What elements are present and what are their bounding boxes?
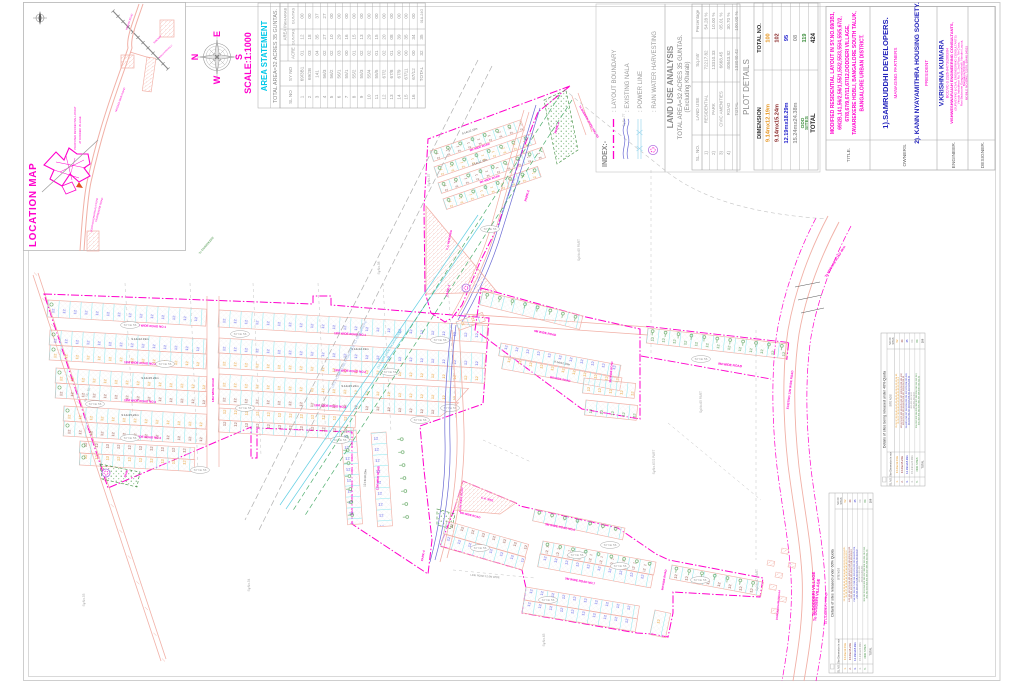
svg-text:00: 00 xyxy=(299,13,304,19)
svg-text:TOTAL: TOTAL xyxy=(920,460,924,469)
svg-text:00: 00 xyxy=(374,13,379,19)
svg-text:TITLE.: TITLE. xyxy=(846,148,852,162)
svg-text:9.14mx12.19m: 9.14mx12.19m xyxy=(895,456,899,473)
svg-text:67/8,67/9,67/11,67/12,DODDERI: 67/8,67/9,67/11,67/12,DODDERI VILLAGE, xyxy=(845,24,851,122)
svg-text:56/2: 56/2 xyxy=(329,69,334,78)
svg-text:Details of sites released unde: Details of sites released under 60% Quot… xyxy=(831,549,835,616)
svg-text:1.: 1. xyxy=(895,480,899,482)
svg-text:55/1: 55/1 xyxy=(344,69,349,78)
svg-text:00: 00 xyxy=(381,13,386,19)
svg-text:Sy.No.54: Sy.No.54 xyxy=(247,578,251,591)
svg-text:RESIDENTIAL: RESIDENTIAL xyxy=(703,94,708,123)
svg-text:13310.33: 13310.33 xyxy=(711,50,716,70)
svg-text:00: 00 xyxy=(404,50,409,56)
svg-text:E: E xyxy=(212,31,222,37)
svg-text:2.: 2. xyxy=(848,667,852,669)
svg-text:69/3B1: 69/3B1 xyxy=(299,66,304,81)
svg-text:DIMENSION: DIMENSION xyxy=(757,107,763,139)
svg-text:6: 6 xyxy=(337,95,342,98)
svg-text:TOTAL: TOTAL xyxy=(419,66,424,81)
svg-text:00: 00 xyxy=(396,50,401,56)
svg-text:35,36,37,38,39,40,41,42,43,44,: 35,36,37,38,39,40,41,42,43,44,45,46,60,6… xyxy=(898,376,900,424)
svg-text:Sy.No.67 PART: Sy.No.67 PART xyxy=(755,569,759,591)
svg-text:01A-24G: 01A-24G xyxy=(420,9,424,24)
svg-text:Sy.No.65 PART: Sy.No.65 PART xyxy=(577,239,581,261)
svg-text:16: 16 xyxy=(344,34,349,40)
svg-text:01: 01 xyxy=(299,50,304,56)
svg-text:SY No 56: SY No 56 xyxy=(571,553,584,557)
svg-text:TOTAL: TOTAL xyxy=(811,113,817,133)
svg-text:9.14mx12.19m: 9.14mx12.19m xyxy=(766,104,772,142)
svg-text:TAVAREKERE HOBLI, BANGALORE SO: TAVAREKERE HOBLI, BANGALORE SOUTH TALUK, xyxy=(852,11,858,135)
svg-text:214,215,216,217,218,219,220,22: 214,215,216,217,218,219,220,221,222,223,… xyxy=(856,549,858,599)
svg-text:35,36,37,38,39,40,41,42,43,44,: 35,36,37,38,39,40,41,42,43,44,45,46,60,6… xyxy=(846,550,848,598)
svg-text:55/3: 55/3 xyxy=(359,69,364,78)
svg-text:GUNTAS: GUNTAS xyxy=(291,28,296,45)
svg-text:SITES: SITES xyxy=(804,115,810,130)
svg-text:SL NO: SL NO xyxy=(288,90,293,104)
svg-text:Details of sites being release: Details of sites being released under 40… xyxy=(883,371,887,448)
svg-text:SY No 56: SY No 56 xyxy=(239,406,252,410)
svg-text:2): 2) xyxy=(711,150,716,155)
svg-text:SY No 56: SY No 56 xyxy=(614,564,627,568)
svg-text:34: 34 xyxy=(411,34,416,40)
svg-text:35: 35 xyxy=(404,34,409,40)
svg-text:18M WIDE ROAD: 18M WIDE ROAD xyxy=(211,377,215,402)
svg-text:SY No 56: SY No 56 xyxy=(334,438,347,442)
svg-text:LAND USE: LAND USE xyxy=(695,98,700,121)
svg-text:72217.82: 72217.82 xyxy=(703,50,708,70)
svg-text:55/2: 55/2 xyxy=(352,69,357,78)
svg-text:00: 00 xyxy=(359,13,364,19)
svg-text:1: 1 xyxy=(299,95,304,98)
svg-text:2: 2 xyxy=(307,95,312,98)
svg-text:PRESIDENT: PRESIDENT xyxy=(924,60,929,86)
svg-text:03: 03 xyxy=(307,50,312,56)
svg-text:100: 100 xyxy=(766,33,772,42)
svg-text:16: 16 xyxy=(411,94,416,100)
svg-text:TOTAL AREA=32 ACRES 35 GUN: TOTAL AREA=32 ACRES 35 GUNTAS. xyxy=(678,34,684,139)
svg-text:08: 08 xyxy=(793,35,799,41)
svg-text:9.14mx15.24m: 9.14mx15.24m xyxy=(900,456,904,473)
svg-text:PLOT DETAILS: PLOT DETAILS xyxy=(742,59,751,115)
svg-text:100.00 %: 100.00 % xyxy=(734,11,739,30)
svg-text:SL. NO.: SL. NO. xyxy=(695,145,700,161)
svg-text:1).SAMRUDDHI DEVELOPERS.: 1).SAMRUDDHI DEVELOPERS. xyxy=(881,17,890,128)
svg-text:00: 00 xyxy=(352,13,357,19)
svg-text:11: 11 xyxy=(374,94,379,99)
svg-text:27: 27 xyxy=(322,13,327,19)
svg-text:00: 00 xyxy=(396,13,401,19)
svg-text:: RAIN WATER HARVESTING: : RAIN WATER HARVESTING xyxy=(652,31,658,112)
svg-text:15.24mx24.38m: 15.24mx24.38m xyxy=(793,102,799,143)
svg-text:04: 04 xyxy=(314,50,319,56)
svg-text:SY No 56: SY No 56 xyxy=(124,323,137,327)
svg-text:4: 4 xyxy=(322,95,327,98)
svg-text:120,121,122,123,124,125,126,12: 120,121,122,123,124,125,126,127,128,129,… xyxy=(903,375,905,425)
svg-text:LAND USE ANALYSIS: LAND USE ANALYSIS xyxy=(666,45,675,128)
svg-text:SY No 56: SY No 56 xyxy=(384,370,397,374)
svg-text:4): 4) xyxy=(726,150,731,155)
svg-text:56/1: 56/1 xyxy=(337,69,342,78)
svg-text:120,121,122,123,124,125,126,12: 120,121,122,123,124,125,126,127,128,129,… xyxy=(851,549,853,599)
svg-text:9.14mx15.24m: 9.14mx15.24m xyxy=(848,643,852,660)
svg-text:To DODDERI Village: To DODDERI Village xyxy=(824,591,828,624)
svg-text:35: 35 xyxy=(419,34,424,40)
svg-text:ROAD: ROAD xyxy=(726,103,731,115)
svg-text:18: 18 xyxy=(307,34,312,40)
svg-text:32: 32 xyxy=(419,50,424,56)
svg-text:MANAGING PARTNERS: MANAGING PARTNERS xyxy=(893,48,898,99)
svg-text:3.: 3. xyxy=(853,667,857,669)
svg-text:00: 00 xyxy=(344,13,349,19)
svg-text:Sy.No.63: Sy.No.63 xyxy=(542,633,546,646)
svg-text:ODD SITES: ODD SITES xyxy=(915,457,919,471)
svg-text:29: 29 xyxy=(366,34,371,40)
svg-text:00: 00 xyxy=(366,13,371,19)
svg-text:2.: 2. xyxy=(900,480,904,482)
svg-text:AT DODDERI VILLAGE: AT DODDERI VILLAGE xyxy=(78,116,82,144)
svg-text:00: 00 xyxy=(404,13,409,19)
svg-text:Sy.No.67/2 PART: Sy.No.67/2 PART xyxy=(652,450,656,475)
svg-text:W: W xyxy=(212,75,222,84)
svg-text:01: 01 xyxy=(374,50,379,56)
svg-text:00: 00 xyxy=(411,13,416,19)
svg-text:12: 12 xyxy=(381,94,386,100)
svg-text:214,215,216,217,218,219,220,22: 214,215,216,217,218,219,220,221,222,223,… xyxy=(908,375,910,425)
svg-text:SL.NO.: SL.NO. xyxy=(889,477,893,486)
svg-text:TOTAL: TOTAL xyxy=(734,102,739,116)
svg-text:1.: 1. xyxy=(843,667,847,669)
svg-text:TOTAL NO.: TOTAL NO. xyxy=(757,23,763,53)
svg-text:10.00 %: 10.00 % xyxy=(711,13,716,30)
svg-text:3.: 3. xyxy=(905,480,909,482)
svg-text:424: 424 xyxy=(811,32,817,43)
svg-text:ODD SITES: ODD SITES xyxy=(863,644,867,658)
svg-text:MOBILE NO:99451 72079, 99448 9: MOBILE NO:99451 72079, 99448 94553 xyxy=(965,46,969,101)
svg-text:01: 01 xyxy=(389,50,394,56)
svg-text:SY No 56: SY No 56 xyxy=(194,468,207,472)
svg-text:67/9: 67/9 xyxy=(396,69,401,78)
svg-text:SL.NO.: SL.NO. xyxy=(837,664,841,673)
svg-text:AREA STATEMENT: AREA STATEMENT xyxy=(260,21,269,92)
svg-text:15: 15 xyxy=(404,94,409,100)
svg-text:02: 02 xyxy=(366,50,371,56)
svg-text:95: 95 xyxy=(784,35,790,41)
svg-text:08: 08 xyxy=(389,34,394,40)
svg-text:Sy.No.65 PART: Sy.No.65 PART xyxy=(699,391,703,413)
svg-text:TOTAL AREA=32 ACRES 35 GUN: TOTAL AREA=32 ACRES 35 GUNTAS. xyxy=(273,9,279,103)
svg-text:: EXISTING NALA: : EXISTING NALA xyxy=(625,63,631,112)
svg-text:5.: 5. xyxy=(863,667,867,669)
svg-text:55/5: 55/5 xyxy=(374,69,379,78)
svg-text:03: 03 xyxy=(337,50,342,56)
svg-text:4.: 4. xyxy=(858,667,862,669)
svg-text:3: 3 xyxy=(314,95,319,98)
svg-text:BANGALORE URBAN DISTRICT.: BANGALORE URBAN DISTRICT. xyxy=(860,34,866,112)
svg-text:5: 5 xyxy=(329,95,334,98)
svg-text:15.24mx24.38m: 15.24mx24.38m xyxy=(858,642,862,661)
svg-text:02: 02 xyxy=(329,50,334,56)
svg-text:9.14mx12.19m: 9.14mx12.19m xyxy=(843,643,847,660)
svg-text:00: 00 xyxy=(329,13,334,19)
svg-text:SY No 56: SY No 56 xyxy=(474,546,487,550)
svg-text:SY No 56: SY No 56 xyxy=(604,543,617,547)
svg-text:INDEX:-: INDEX:- xyxy=(602,140,609,167)
svg-text:14: 14 xyxy=(396,94,401,100)
svg-text:SCALE:1:1000: SCALE:1:1000 xyxy=(243,32,253,94)
svg-text:69/2B: 69/2B xyxy=(307,68,312,80)
svg-text:SITE NOS: SITE NOS xyxy=(889,394,893,406)
svg-text:AREA IN: AREA IN xyxy=(283,24,288,41)
svg-text:05.01 %: 05.01 % xyxy=(719,13,724,30)
svg-text:KHARAB: KHARAB xyxy=(283,7,288,24)
svg-text:02: 02 xyxy=(381,50,386,56)
svg-text:00: 00 xyxy=(307,13,312,19)
svg-text:SY No 56: SY No 56 xyxy=(234,332,247,336)
svg-text:SY No 56: SY No 56 xyxy=(694,578,707,582)
svg-text:55/4: 55/4 xyxy=(366,69,371,78)
svg-text:PROPOSED RESIDENTIAL LAYOUT: PROPOSED RESIDENTIAL LAYOUT xyxy=(73,106,77,150)
svg-text:: LAYOUT BOUNDARY: : LAYOUT BOUNDARY xyxy=(612,50,618,112)
svg-text:12.19mx18.29m: 12.19mx18.29m xyxy=(905,455,909,474)
svg-text:Site Dimension in mtr: Site Dimension in mtr xyxy=(889,452,893,477)
svg-text:56/3: 56/3 xyxy=(322,69,327,78)
svg-text:30.70 %: 30.70 % xyxy=(726,13,731,30)
svg-text:3): 3) xyxy=(719,150,724,155)
svg-text:400,401,402,403: 400,401,402,403 xyxy=(913,392,915,409)
svg-text:13: 13 xyxy=(359,34,364,40)
svg-text:13: 13 xyxy=(389,94,394,100)
svg-text:GUNTAS: GUNTAS xyxy=(291,7,296,24)
svg-text:SY No 56: SY No 56 xyxy=(159,362,172,366)
svg-text:69/2B,141,56/2,56/1,55/1,55/2,: 69/2B,141,56/2,56/1,55/1,55/2,55/3,55/4,… xyxy=(837,16,843,130)
svg-text:01: 01 xyxy=(352,50,357,56)
svg-text:27: 27 xyxy=(322,34,327,40)
svg-text:12: 12 xyxy=(299,34,304,40)
svg-text:DESIGNER.: DESIGNER. xyxy=(980,142,986,168)
svg-text:37: 37 xyxy=(314,13,319,19)
svg-text:00: 00 xyxy=(389,13,394,19)
svg-text:209: 209 xyxy=(868,498,872,503)
svg-text:SY No 56: SY No 56 xyxy=(434,338,447,342)
svg-text:ACRE: ACRE xyxy=(291,47,296,59)
svg-text:TOTAL: TOTAL xyxy=(868,647,872,656)
svg-text:(Excluding Kharab): (Excluding Kharab) xyxy=(685,61,691,112)
svg-text:Percentage: Percentage xyxy=(695,9,700,32)
svg-text:12.19mx18.29m: 12.19mx18.29m xyxy=(853,642,857,661)
svg-text:119: 119 xyxy=(802,33,808,42)
svg-text:Sy.No.58: Sy.No.58 xyxy=(377,261,381,274)
svg-text:39: 39 xyxy=(396,34,401,40)
svg-text:Sq.mtr: Sq.mtr xyxy=(695,53,700,67)
svg-text:To DODDERI VILLAGE: To DODDERI VILLAGE xyxy=(811,572,816,617)
svg-text:MODIFIED RESIDENTIAL LAYOUT IN: MODIFIED RESIDENTIAL LAYOUT IN SY.NO.69/… xyxy=(830,11,836,134)
svg-text:PARK: PARK xyxy=(711,103,716,115)
svg-text:2). KANN NYAYAMITHRA HOUSING: 2). KANN NYAYAMITHRA HOUSING SOCIETY. xyxy=(914,2,921,144)
svg-text:SY No 56: SY No 56 xyxy=(124,436,137,440)
svg-text:67/8: 67/8 xyxy=(389,69,394,78)
svg-text:00: 00 xyxy=(337,13,342,19)
svg-text:CIVIC AMENITIES: CIVIC AMENITIES xyxy=(719,91,724,127)
svg-text:6668.45: 6668.45 xyxy=(719,51,724,68)
svg-text:7: 7 xyxy=(344,95,349,98)
svg-text:9.14x15.24m: 9.14x15.24m xyxy=(121,413,139,417)
svg-text:20: 20 xyxy=(381,34,386,40)
svg-text:40843.82: 40843.82 xyxy=(726,50,731,70)
svg-text:67/12: 67/12 xyxy=(411,68,416,80)
svg-text:10: 10 xyxy=(366,94,371,100)
svg-text:5.: 5. xyxy=(915,480,919,482)
svg-text:15: 15 xyxy=(374,34,379,40)
svg-text:9.14x15.24m: 9.14x15.24m xyxy=(141,376,159,380)
svg-text:133040.42: 133040.42 xyxy=(734,49,739,71)
svg-text:12.19mx18.29m: 12.19mx18.29m xyxy=(784,102,790,143)
svg-text:4.: 4. xyxy=(910,480,914,482)
svg-text:V.KRISHNA KUMARA: V.KRISHNA KUMARA xyxy=(939,39,946,106)
svg-text:15: 15 xyxy=(352,34,357,40)
svg-text:141: 141 xyxy=(314,70,319,78)
svg-text:OWNERS.: OWNERS. xyxy=(902,144,908,167)
svg-text:9.14mx15.24m: 9.14mx15.24m xyxy=(775,104,781,142)
svg-text:SY No 56: SY No 56 xyxy=(414,418,427,422)
svg-text:102: 102 xyxy=(775,33,781,42)
svg-text:SY No 56: SY No 56 xyxy=(695,357,708,361)
svg-text:ENGINEER.: ENGINEER. xyxy=(951,142,957,168)
svg-text:Sy.No.57: Sy.No.57 xyxy=(427,173,431,186)
svg-text:SY NO: SY NO xyxy=(288,66,293,81)
svg-text:: POWER LINE: : POWER LINE xyxy=(638,71,644,112)
svg-text:1): 1) xyxy=(703,150,708,155)
svg-text:15.24mx24.38m: 15.24mx24.38m xyxy=(910,455,914,474)
svg-text:SY No 56: SY No 56 xyxy=(484,227,497,231)
svg-text:02: 02 xyxy=(359,50,364,56)
svg-text:00: 00 xyxy=(411,50,416,56)
svg-text:02: 02 xyxy=(322,50,327,56)
svg-text:209: 209 xyxy=(920,338,924,343)
svg-text:SITE NOS: SITE NOS xyxy=(837,568,841,580)
svg-text:35: 35 xyxy=(314,34,319,40)
svg-text:SY No 56: SY No 56 xyxy=(542,598,555,602)
svg-text:54.28 %: 54.28 % xyxy=(703,13,708,30)
svg-text:301,302,303,304,305,306,307,30: 301,302,303,304,305,306,307,308,309,310,… xyxy=(866,549,868,599)
svg-text:10: 10 xyxy=(329,34,334,40)
svg-text:9.14x15.24m: 9.14x15.24m xyxy=(341,384,359,388)
svg-text:8: 8 xyxy=(352,95,357,98)
svg-text:400,401,402,403: 400,401,402,403 xyxy=(861,565,863,582)
svg-text:67/11: 67/11 xyxy=(404,68,409,80)
svg-text:301,302,303,304,305,306,307,30: 301,302,303,304,305,306,307,308,309,310,… xyxy=(918,375,920,425)
svg-text:LOCATION MAP: LOCATION MAP xyxy=(28,162,39,247)
svg-text:9.14x12.19m: 9.14x12.19m xyxy=(131,337,149,341)
svg-text:N: N xyxy=(190,54,200,61)
svg-text:Site Dimension in mtr: Site Dimension in mtr xyxy=(837,639,841,664)
svg-text:00: 00 xyxy=(344,50,349,56)
svg-text:29: 29 xyxy=(337,34,342,40)
svg-text:9: 9 xyxy=(359,95,364,98)
svg-text:SY No 56: SY No 56 xyxy=(89,402,102,406)
svg-text:67/2: 67/2 xyxy=(381,69,386,78)
svg-text:Sy.No.53: Sy.No.53 xyxy=(82,593,86,606)
